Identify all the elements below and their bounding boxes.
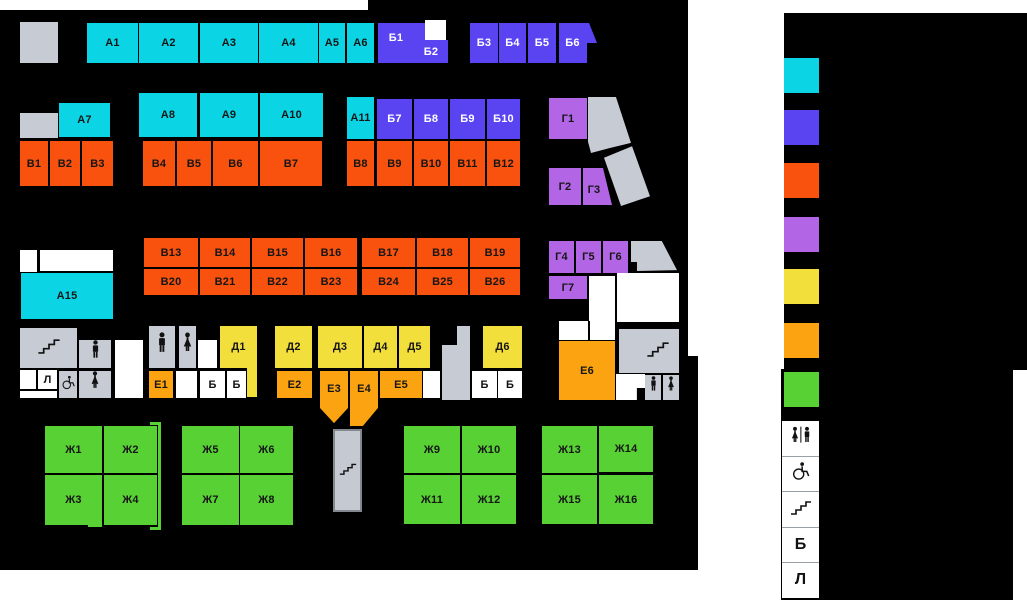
unit-d5[interactable]: Д5 (399, 326, 430, 368)
unit-a11[interactable]: А11 (347, 97, 374, 139)
divider (20, 389, 57, 391)
unit-a5[interactable]: А5 (319, 23, 345, 63)
unit-zh16[interactable]: Ж16 (599, 475, 653, 524)
wheelchair-icon (791, 461, 811, 486)
wheelchair-cell (59, 371, 77, 398)
unit-a3[interactable]: А3 (200, 23, 258, 63)
unit-zh6[interactable]: Ж6 (240, 426, 293, 473)
unit-g2[interactable]: Г2 (549, 168, 581, 205)
unit-zh7[interactable]: Ж7 (182, 475, 239, 525)
legend-swatch-zone-d (784, 269, 819, 304)
zone-zh-bracket (150, 422, 161, 530)
legend-swatch-zone-b (784, 110, 819, 145)
unit-v8[interactable]: В8 (347, 141, 374, 186)
legend-panel (784, 13, 1027, 370)
unit-v4[interactable]: В4 (143, 141, 175, 186)
unit-zh12[interactable]: Ж12 (462, 475, 516, 524)
white-niche (40, 250, 113, 271)
white-niche (590, 321, 615, 340)
unit-v5[interactable]: В5 (177, 141, 211, 186)
unit-d3[interactable]: Д3 (318, 326, 362, 368)
unit-a2[interactable]: А2 (139, 23, 198, 63)
unit-v11[interactable]: В11 (450, 141, 485, 186)
unit-v19[interactable]: В19 (470, 238, 520, 267)
unit-a8[interactable]: А8 (139, 93, 197, 137)
unit-g7[interactable]: Г7 (549, 276, 587, 299)
unit-v26[interactable]: В26 (470, 269, 520, 295)
unit-e2[interactable]: Е2 (277, 371, 312, 398)
unit-v16[interactable]: В16 (305, 238, 357, 267)
legend-swatch-zone-g (784, 217, 819, 252)
toilet-men-cell (645, 375, 661, 400)
unit-b4[interactable]: Б4 (499, 23, 526, 63)
legend-row-wheelchair (782, 456, 819, 491)
legend-swatch-zone-v (784, 163, 819, 198)
unit-b3[interactable]: Б3 (470, 23, 498, 63)
legend-row-stairs (782, 491, 819, 527)
woman-icon (181, 332, 194, 362)
corridor-block (20, 113, 58, 138)
legend-row-lift: Л (782, 562, 819, 598)
atm-cell: Б (472, 371, 497, 398)
lift-cell: Л (38, 370, 57, 389)
unit-v18[interactable]: В18 (417, 238, 468, 267)
stairs-icon (789, 499, 813, 520)
unit-v6[interactable]: В6 (213, 141, 258, 186)
toilets-icon (790, 426, 812, 451)
unit-v22[interactable]: В22 (252, 269, 303, 295)
unit-v10[interactable]: В10 (414, 141, 448, 186)
floor-plan: А1 А2 А3 А4 А5 А6 А7 А8 А9 А10 А11 А15 Б… (0, 0, 1027, 600)
unit-v24[interactable]: В24 (362, 269, 415, 295)
white-niche (425, 20, 446, 40)
white-niche (20, 250, 37, 272)
unit-zh1[interactable]: Ж1 (45, 426, 102, 473)
unit-b10[interactable]: Б10 (487, 99, 520, 139)
atm-cell: Б (498, 371, 522, 398)
legend-row-toilets (782, 421, 819, 456)
unit-zh9[interactable]: Ж9 (404, 426, 460, 473)
unit-d2[interactable]: Д2 (275, 326, 312, 368)
unit-d4[interactable]: Д4 (364, 326, 397, 368)
man-icon (156, 332, 168, 363)
toilet-women-cell (79, 371, 111, 398)
stairs-icon (36, 337, 62, 359)
toilet-men-cell (79, 340, 111, 368)
atm-cell: Б (200, 371, 225, 398)
unit-v15[interactable]: В15 (252, 238, 303, 267)
unit-a6[interactable]: А6 (347, 23, 374, 63)
map-background (688, 356, 698, 570)
unit-g1[interactable]: Г1 (549, 98, 587, 139)
unit-v17[interactable]: В17 (362, 238, 415, 267)
legend-swatch-zone-zh (784, 372, 819, 407)
unit-zh3[interactable]: Ж3 (45, 475, 102, 525)
white-niche (115, 340, 143, 398)
woman-icon (666, 376, 676, 400)
unit-e1[interactable]: Е1 (149, 371, 173, 398)
man-icon (649, 376, 658, 400)
unit-zh11[interactable]: Ж11 (404, 475, 460, 524)
zone-zh-tick (88, 525, 102, 527)
unit-v1[interactable]: В1 (20, 141, 48, 186)
unit-v20[interactable]: В20 (144, 269, 198, 295)
stairs-area (619, 329, 679, 373)
corridor-block (20, 22, 58, 63)
unit-zh8[interactable]: Ж8 (240, 475, 293, 525)
unit-zh14[interactable]: Ж14 (599, 426, 653, 472)
white-niche (559, 321, 588, 340)
stairs-icon (645, 340, 671, 362)
map-background (368, 0, 688, 10)
unit-e6[interactable]: Е6 (559, 341, 615, 400)
unit-a15[interactable]: А15 (21, 273, 113, 319)
white-niche (176, 371, 197, 398)
unit-a1[interactable]: А1 (87, 23, 138, 63)
unit-v2[interactable]: В2 (50, 141, 80, 186)
unit-v13[interactable]: В13 (144, 238, 198, 267)
unit-g6[interactable]: Г6 (603, 241, 628, 273)
legend-swatch-zone-e (784, 323, 819, 358)
unit-v7[interactable]: В7 (260, 141, 322, 186)
unit-v12[interactable]: В12 (487, 141, 520, 186)
wheelchair-icon (61, 375, 76, 395)
unit-b9[interactable]: Б9 (450, 99, 485, 139)
woman-icon (89, 371, 101, 398)
toilet-men-cell (149, 326, 175, 368)
atm-cell: Б (227, 371, 246, 398)
unit-v3[interactable]: В3 (82, 141, 113, 186)
unit-a9[interactable]: А9 (200, 93, 258, 137)
unit-zh13[interactable]: Ж13 (542, 426, 597, 473)
unit-e5[interactable]: Е5 (380, 371, 422, 398)
stairs-area (20, 328, 77, 368)
unit-v14[interactable]: В14 (200, 238, 250, 267)
unit-v25[interactable]: В25 (417, 269, 468, 295)
legend-swatch-zone-a (784, 58, 819, 93)
white-niche (198, 340, 217, 368)
unit-g5[interactable]: Г5 (576, 241, 601, 273)
white-niche (589, 276, 615, 321)
unit-b2[interactable]: Б2 (414, 40, 448, 63)
man-icon (90, 340, 101, 368)
unit-v21[interactable]: В21 (200, 269, 250, 295)
unit-a7[interactable]: А7 (59, 103, 110, 137)
unit-a10[interactable]: А10 (260, 93, 323, 137)
unit-g4[interactable]: Г4 (549, 241, 574, 273)
unit-v9[interactable]: В9 (377, 141, 412, 186)
unit-v23[interactable]: В23 (305, 269, 357, 295)
unit-zh15[interactable]: Ж15 (542, 475, 597, 524)
unit-a4[interactable]: А4 (259, 23, 318, 63)
toilet-women-cell (663, 375, 679, 400)
white-niche (617, 273, 679, 322)
stair-shaft (333, 429, 362, 512)
unit-b8[interactable]: Б8 (414, 99, 448, 139)
legend-row-atm: Б (782, 527, 819, 562)
toilet-women-cell (179, 326, 196, 368)
unit-b7[interactable]: Б7 (377, 99, 412, 139)
unit-b5[interactable]: Б5 (528, 23, 556, 63)
stairs-icon (339, 462, 357, 480)
unit-zh10[interactable]: Ж10 (462, 426, 516, 473)
white-niche (423, 371, 440, 398)
unit-zh5[interactable]: Ж5 (182, 426, 239, 473)
unit-d6[interactable]: Д6 (483, 326, 522, 368)
